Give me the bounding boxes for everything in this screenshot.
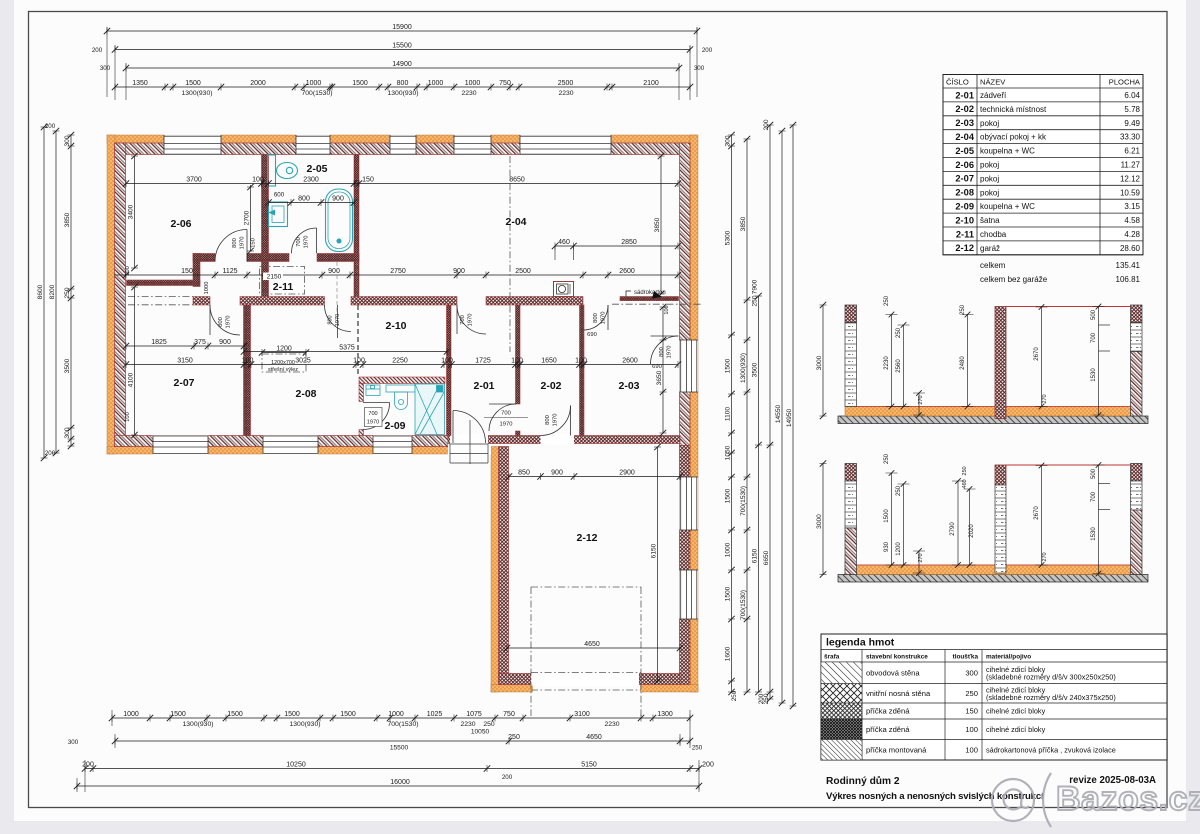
svg-text:Bazos.cz: Bazos.cz: [1056, 780, 1200, 818]
svg-text:cihelné zdicí bloky: cihelné zdicí bloky: [986, 725, 1046, 734]
svg-text:15500: 15500: [390, 745, 409, 752]
svg-text:5.78: 5.78: [1124, 105, 1140, 114]
svg-text:1500: 1500: [725, 358, 732, 373]
svg-text:2700: 2700: [244, 210, 251, 225]
svg-text:700: 700: [368, 411, 377, 417]
svg-text:150: 150: [965, 707, 978, 716]
svg-text:vnitřní nosná stěna: vnitřní nosná stěna: [866, 689, 931, 698]
svg-text:16000: 16000: [390, 779, 410, 786]
svg-text:100: 100: [353, 357, 365, 364]
svg-text:stavební konstrukce: stavební konstrukce: [866, 654, 928, 661]
svg-text:250: 250: [692, 745, 703, 752]
svg-text:2-01: 2-01: [473, 380, 494, 392]
svg-text:270: 270: [918, 395, 924, 404]
svg-text:1000: 1000: [388, 711, 404, 718]
svg-text:250: 250: [896, 327, 902, 338]
svg-text:2230: 2230: [460, 721, 475, 728]
svg-text:3650: 3650: [656, 370, 663, 385]
svg-text:obývací pokoj + kk: obývací pokoj + kk: [980, 133, 1047, 142]
svg-text:2600: 2600: [619, 268, 635, 275]
svg-text:250: 250: [752, 295, 759, 306]
svg-text:700(1530): 700(1530): [740, 486, 747, 516]
svg-text:800: 800: [659, 347, 665, 357]
svg-text:sádrokarton: sádrokarton: [634, 290, 666, 296]
svg-text:150: 150: [251, 238, 257, 248]
svg-text:270: 270: [1042, 552, 1048, 561]
svg-text:10.59: 10.59: [1120, 188, 1141, 197]
svg-text:250: 250: [483, 721, 495, 728]
svg-text:1300(930): 1300(930): [388, 90, 419, 97]
svg-text:1970: 1970: [304, 236, 310, 249]
svg-text:6150: 6150: [752, 548, 759, 563]
svg-text:200: 200: [45, 450, 56, 457]
svg-text:6150: 6150: [651, 543, 658, 558]
svg-text:1970: 1970: [335, 314, 341, 326]
svg-text:750: 750: [499, 80, 511, 87]
svg-text:4650: 4650: [584, 641, 600, 648]
svg-text:500: 500: [1091, 309, 1097, 320]
svg-text:šatna: šatna: [980, 216, 1000, 225]
svg-text:koupelna + WC: koupelna + WC: [980, 202, 1035, 211]
svg-text:1650: 1650: [541, 357, 557, 364]
svg-text:700(1530): 700(1530): [740, 590, 747, 620]
svg-text:příčka montovaná: příčka montovaná: [866, 745, 927, 754]
svg-text:1300(930): 1300(930): [290, 721, 321, 728]
svg-text:700: 700: [501, 411, 511, 417]
svg-text:2100: 2100: [643, 80, 659, 87]
svg-text:5150: 5150: [581, 761, 597, 768]
svg-text:Výkres nosných a nenosných svi: Výkres nosných a nenosných svislých kons…: [826, 791, 1044, 802]
svg-text:2-08: 2-08: [955, 188, 974, 198]
svg-text:8200: 8200: [49, 284, 56, 299]
svg-text:100: 100: [965, 745, 978, 754]
svg-text:1300(930): 1300(930): [740, 353, 747, 383]
svg-text:4100: 4100: [128, 372, 135, 387]
svg-text:2-11: 2-11: [956, 229, 974, 239]
svg-text:250: 250: [508, 734, 520, 741]
svg-text:3500: 3500: [64, 358, 71, 373]
svg-text:2-02: 2-02: [955, 104, 974, 114]
svg-text:300: 300: [725, 135, 732, 146]
svg-text:1530: 1530: [1091, 368, 1097, 382]
svg-text:2480: 2480: [960, 356, 966, 370]
svg-text:500: 500: [1091, 468, 1097, 479]
svg-text:14900: 14900: [392, 61, 412, 68]
svg-text:2-03: 2-03: [618, 380, 639, 392]
svg-text:cihelné zdicí bloky: cihelné zdicí bloky: [986, 707, 1046, 716]
svg-text:800: 800: [232, 238, 238, 248]
svg-text:1000: 1000: [204, 282, 210, 295]
svg-text:700(1530): 700(1530): [388, 721, 419, 728]
svg-text:2230: 2230: [461, 90, 476, 97]
svg-text:300: 300: [68, 739, 79, 746]
svg-text:3100: 3100: [574, 711, 590, 718]
svg-text:12.12: 12.12: [1120, 174, 1141, 183]
svg-text:800: 800: [593, 313, 599, 323]
svg-text:celkem bez garáže: celkem bez garáže: [980, 275, 1048, 284]
svg-text:příčka zděná: příčka zděná: [866, 725, 910, 734]
svg-text:700: 700: [1091, 332, 1097, 343]
svg-text:2560: 2560: [896, 359, 902, 373]
svg-text:1050: 1050: [725, 445, 732, 460]
svg-text:2790: 2790: [950, 522, 956, 536]
svg-text:1530: 1530: [1091, 527, 1097, 541]
svg-text:3000: 3000: [816, 355, 823, 370]
svg-text:3150: 3150: [177, 357, 193, 364]
svg-text:2-04: 2-04: [505, 216, 526, 228]
svg-text:100: 100: [125, 412, 131, 422]
svg-text:celkem: celkem: [980, 261, 1006, 270]
svg-text:4.28: 4.28: [1124, 230, 1140, 239]
svg-text:2-07: 2-07: [955, 174, 974, 184]
svg-text:200: 200: [92, 47, 103, 54]
svg-text:3025: 3025: [295, 357, 311, 364]
svg-text:1000: 1000: [306, 80, 322, 87]
svg-text:1500: 1500: [884, 509, 890, 523]
svg-text:2-10: 2-10: [385, 320, 406, 332]
svg-text:1500: 1500: [170, 711, 186, 718]
svg-text:2230: 2230: [604, 721, 619, 728]
svg-text:1200: 1200: [276, 345, 292, 352]
svg-text:930: 930: [884, 541, 890, 552]
svg-text:1825: 1825: [151, 339, 167, 346]
svg-text:10250: 10250: [286, 761, 306, 768]
svg-text:chodba: chodba: [980, 230, 1007, 239]
svg-text:600: 600: [274, 192, 285, 199]
svg-text:2-10: 2-10: [955, 215, 974, 225]
svg-text:460: 460: [558, 239, 570, 246]
svg-text:3850: 3850: [64, 212, 71, 227]
svg-text:100: 100: [252, 176, 264, 183]
svg-text:1100: 1100: [725, 407, 732, 422]
svg-text:(skladebné rozměry d/š/v 240x3: (skladebné rozměry d/š/v 240x375x250): [986, 693, 1116, 702]
svg-text:2-05: 2-05: [306, 163, 327, 175]
svg-text:obvodová stěna: obvodová stěna: [866, 668, 920, 677]
svg-text:850: 850: [518, 469, 530, 476]
svg-text:tloušťka: tloušťka: [953, 654, 979, 661]
svg-text:1000: 1000: [465, 80, 481, 87]
svg-text:4.58: 4.58: [1124, 216, 1140, 225]
svg-text:3700: 3700: [186, 176, 202, 183]
svg-text:300: 300: [100, 65, 111, 72]
svg-text:1300(930): 1300(930): [182, 90, 213, 97]
svg-text:1075: 1075: [466, 711, 482, 718]
svg-text:200: 200: [502, 774, 513, 781]
svg-text:3850: 3850: [740, 216, 747, 231]
svg-text:1970: 1970: [468, 314, 474, 327]
svg-text:2670: 2670: [1034, 347, 1040, 361]
svg-text:1500: 1500: [284, 711, 300, 718]
svg-text:700: 700: [460, 315, 466, 325]
svg-text:1300(930): 1300(930): [183, 721, 214, 728]
svg-text:sádrokartonová příčka , zvukov: sádrokartonová příčka , zvuková izolace: [986, 745, 1116, 754]
svg-text:8600: 8600: [37, 284, 44, 299]
svg-text:1970: 1970: [500, 422, 513, 428]
svg-text:1970: 1970: [240, 237, 246, 250]
svg-text:200: 200: [702, 761, 714, 768]
svg-text:300: 300: [965, 668, 978, 677]
svg-text:2230: 2230: [558, 90, 573, 97]
svg-text:1025: 1025: [427, 711, 443, 718]
svg-text:1500: 1500: [352, 80, 368, 87]
svg-text:1125: 1125: [222, 268, 237, 275]
svg-text:2600: 2600: [622, 357, 638, 364]
svg-text:3.15: 3.15: [1124, 202, 1140, 211]
svg-text:příčka zděná: příčka zděná: [866, 707, 910, 716]
svg-text:700: 700: [1091, 491, 1097, 502]
svg-text:2500: 2500: [515, 268, 531, 275]
svg-text:šrafa: šrafa: [824, 654, 840, 661]
svg-text:1600: 1600: [725, 646, 732, 661]
svg-text:900: 900: [332, 195, 344, 202]
svg-text:900: 900: [219, 339, 231, 346]
svg-text:1000: 1000: [123, 711, 139, 718]
svg-text:135.41: 135.41: [1116, 261, 1141, 270]
svg-text:300: 300: [64, 135, 71, 146]
svg-text:6650: 6650: [763, 550, 770, 565]
svg-text:250: 250: [965, 689, 978, 698]
svg-text:200: 200: [45, 123, 56, 130]
svg-text:2-02: 2-02: [540, 380, 561, 392]
svg-text:7900: 7900: [752, 279, 759, 294]
svg-text:14950: 14950: [786, 409, 793, 428]
svg-text:8650: 8650: [509, 176, 525, 183]
svg-text:375: 375: [194, 339, 206, 346]
svg-text:900: 900: [328, 268, 340, 275]
svg-text:270: 270: [918, 553, 924, 562]
svg-text:3400: 3400: [128, 204, 135, 219]
svg-text:NÁZEV: NÁZEV: [980, 78, 1006, 87]
svg-text:2-01: 2-01: [955, 90, 974, 100]
svg-text:2-04: 2-04: [955, 132, 974, 142]
svg-text:28.60: 28.60: [1120, 244, 1141, 253]
svg-text:ČÍSLO: ČÍSLO: [946, 78, 969, 87]
svg-text:690: 690: [587, 332, 597, 338]
svg-text:2020: 2020: [969, 524, 975, 538]
svg-text:200: 200: [82, 761, 94, 768]
svg-text:PLOCHA: PLOCHA: [1109, 78, 1141, 87]
svg-text:6.21: 6.21: [1124, 147, 1140, 156]
svg-text:6.04: 6.04: [1124, 91, 1140, 100]
svg-text:250: 250: [962, 466, 968, 475]
svg-text:1300: 1300: [657, 711, 673, 718]
svg-text:garáž: garáž: [980, 244, 1000, 253]
svg-text:1500: 1500: [185, 80, 201, 87]
svg-text:106.81: 106.81: [1116, 275, 1141, 284]
svg-text:pokoj: pokoj: [980, 174, 999, 183]
svg-text:250: 250: [960, 304, 966, 315]
svg-text:250: 250: [884, 295, 890, 306]
svg-text:2-09: 2-09: [955, 202, 974, 212]
svg-text:15500: 15500: [392, 42, 412, 49]
svg-text:2-03: 2-03: [955, 118, 974, 128]
svg-text:11.27: 11.27: [1121, 161, 1141, 170]
svg-text:2300: 2300: [303, 176, 319, 183]
svg-text:2750: 2750: [390, 268, 406, 275]
svg-text:(skladebné rozměry d/š/v 300x2: (skladebné rozměry d/š/v 300x250x250): [986, 672, 1116, 681]
svg-text:materiál/pojivo: materiál/pojivo: [986, 654, 1031, 661]
svg-text:800: 800: [545, 415, 551, 425]
svg-text:1200: 1200: [896, 542, 902, 556]
svg-text:1350: 1350: [132, 80, 148, 87]
svg-text:300: 300: [64, 427, 71, 438]
svg-text:2-12: 2-12: [576, 532, 597, 544]
svg-text:1200x700: 1200x700: [271, 360, 295, 366]
svg-text:1970: 1970: [601, 312, 607, 325]
svg-text:1000: 1000: [428, 80, 444, 87]
svg-text:250: 250: [896, 485, 902, 496]
svg-text:2670: 2670: [1034, 506, 1040, 520]
svg-text:700(1530): 700(1530): [302, 90, 333, 97]
svg-text:1970: 1970: [226, 316, 232, 329]
svg-text:2-06: 2-06: [170, 218, 191, 230]
svg-text:800: 800: [328, 315, 334, 324]
svg-text:3850: 3850: [654, 217, 661, 232]
svg-text:200: 200: [702, 47, 713, 54]
svg-text:800: 800: [397, 80, 409, 87]
svg-text:10050: 10050: [471, 729, 490, 736]
svg-text:700: 700: [296, 237, 302, 247]
svg-text:2-12: 2-12: [955, 243, 974, 253]
svg-text:pokoj: pokoj: [980, 188, 999, 197]
svg-text:2850: 2850: [621, 239, 637, 246]
svg-text:3500: 3500: [752, 362, 759, 377]
svg-text:koupelna + WC: koupelna + WC: [980, 147, 1035, 156]
svg-text:33.30: 33.30: [1120, 133, 1141, 142]
svg-text:270: 270: [1042, 394, 1048, 403]
svg-text:100: 100: [242, 357, 254, 364]
svg-text:750: 750: [503, 711, 515, 718]
svg-text:460: 460: [962, 479, 968, 488]
svg-text:5375: 5375: [339, 344, 355, 351]
svg-text:800: 800: [298, 195, 310, 202]
svg-text:150: 150: [181, 268, 193, 275]
svg-text:2-06: 2-06: [955, 160, 974, 170]
svg-text:2900: 2900: [619, 469, 635, 476]
svg-text:300: 300: [694, 65, 705, 72]
svg-text:250: 250: [64, 287, 71, 298]
svg-text:1500: 1500: [725, 586, 732, 601]
svg-text:2-05: 2-05: [955, 146, 974, 156]
svg-text:1970: 1970: [553, 414, 559, 427]
svg-text:800: 800: [218, 317, 224, 327]
svg-text:2-11: 2-11: [273, 281, 294, 293]
svg-text:1970: 1970: [667, 346, 673, 359]
svg-text:100: 100: [575, 357, 587, 364]
svg-text:150: 150: [362, 176, 374, 183]
svg-text:900: 900: [551, 469, 563, 476]
svg-text:1500: 1500: [340, 711, 356, 718]
svg-text:1725: 1725: [475, 357, 491, 364]
svg-text:100: 100: [441, 357, 453, 364]
svg-text:pokoj: pokoj: [980, 119, 999, 128]
svg-text:3000: 3000: [816, 514, 823, 529]
svg-text:100: 100: [965, 725, 978, 734]
svg-text:900: 900: [453, 268, 465, 275]
svg-text:14550: 14550: [775, 405, 782, 424]
svg-text:legenda hmot: legenda hmot: [826, 637, 895, 649]
svg-text:2-09: 2-09: [384, 420, 405, 432]
svg-text:Rodinný dům 2: Rodinný dům 2: [826, 775, 900, 787]
svg-text:pokoj: pokoj: [980, 161, 999, 170]
svg-text:1000: 1000: [725, 542, 732, 557]
svg-text:2-08: 2-08: [295, 388, 316, 400]
svg-text:250: 250: [731, 690, 738, 701]
svg-text:2250: 2250: [392, 357, 408, 364]
svg-text:4650: 4650: [586, 734, 602, 741]
svg-text:2150: 2150: [267, 274, 282, 281]
svg-text:2230: 2230: [884, 356, 890, 370]
svg-text:2500: 2500: [558, 80, 574, 87]
svg-text:200: 200: [763, 119, 770, 130]
svg-text:1970: 1970: [367, 420, 379, 426]
svg-text:250: 250: [884, 453, 890, 464]
svg-text:690: 690: [652, 364, 662, 370]
svg-text:5300: 5300: [725, 230, 732, 245]
svg-text:15900: 15900: [392, 24, 412, 31]
svg-text:technická místnost: technická místnost: [980, 105, 1047, 114]
svg-text:200: 200: [758, 693, 765, 704]
svg-text:2-07: 2-07: [173, 377, 194, 389]
svg-text:zádveří: zádveří: [980, 91, 1007, 100]
svg-text:2000: 2000: [250, 80, 266, 87]
svg-text:1500: 1500: [227, 711, 243, 718]
svg-text:střešní výlez: střešní výlez: [268, 367, 298, 373]
svg-text:9.49: 9.49: [1124, 119, 1140, 128]
svg-text:1500: 1500: [725, 488, 732, 503]
svg-text:100: 100: [511, 357, 523, 364]
